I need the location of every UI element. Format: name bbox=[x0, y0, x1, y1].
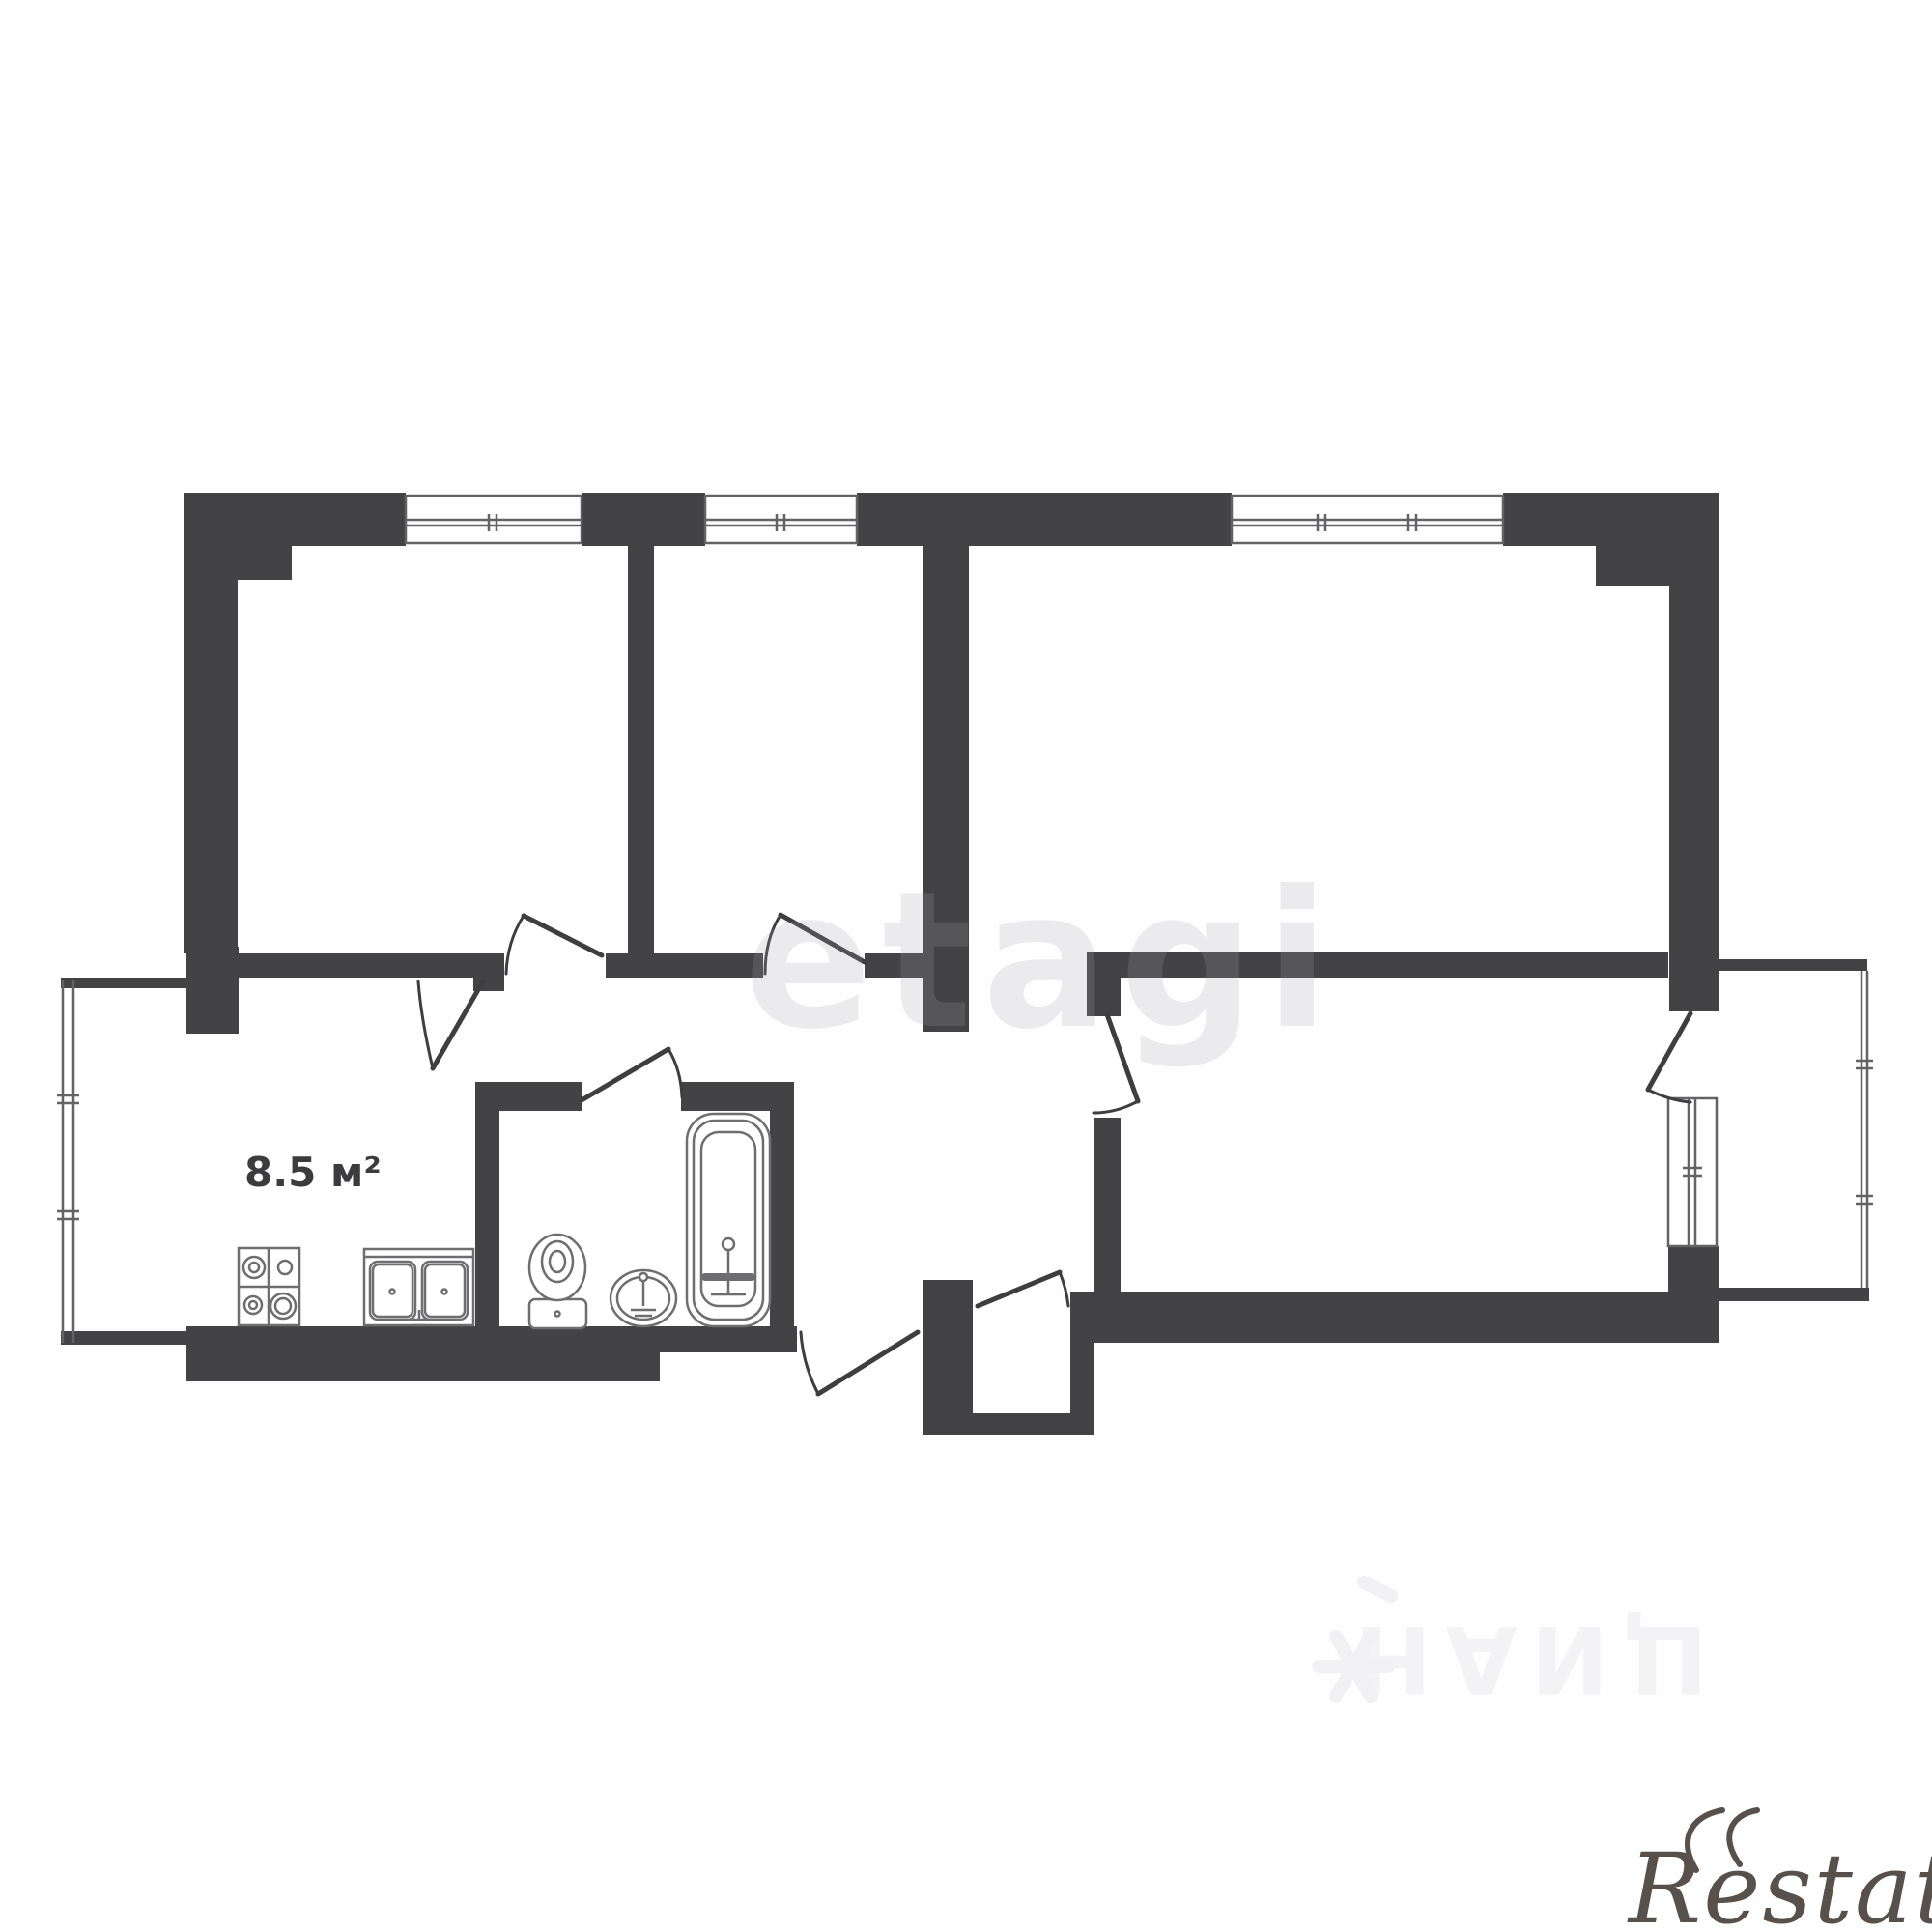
wall-vestibule-left bbox=[923, 1280, 973, 1435]
wall-bath-left bbox=[475, 1082, 499, 1326]
door-entry-niche bbox=[978, 1272, 1068, 1306]
window-rightroom bbox=[1668, 1098, 1717, 1246]
wall-kitchen-block bbox=[186, 947, 239, 1034]
floor-plan-image: etagi bbox=[0, 0, 1932, 1932]
wall-rightroom-bottom bbox=[1094, 1292, 1719, 1343]
wall-balcony-top bbox=[1719, 959, 1867, 971]
wall-bath-right bbox=[770, 1082, 794, 1326]
wall-rightroom-left bbox=[1094, 1118, 1121, 1292]
kitchen-area-label: 8.5 м² bbox=[244, 1149, 382, 1196]
wall-bottom-b bbox=[186, 1352, 660, 1381]
kitchen-sink bbox=[364, 1249, 473, 1325]
window-room3 bbox=[1232, 496, 1503, 543]
wash-basin bbox=[611, 1270, 676, 1326]
wall-notch-topright bbox=[1596, 546, 1669, 586]
stove bbox=[239, 1248, 299, 1325]
wall-top-3 bbox=[857, 493, 1232, 546]
wall-divider-b bbox=[606, 953, 763, 978]
wall-balcony-pillar bbox=[1668, 1246, 1719, 1294]
door-balcony bbox=[1648, 1013, 1690, 1102]
door-bathroom bbox=[582, 1049, 682, 1100]
fixtures bbox=[239, 1114, 770, 1328]
wall-top-1 bbox=[184, 493, 406, 546]
logo-restate: Restate bbox=[1627, 1810, 1932, 1932]
door-entry-hall bbox=[801, 1332, 918, 1394]
wall-vestibule-right bbox=[1070, 1292, 1094, 1435]
door-room-left bbox=[506, 916, 602, 974]
watermark-cian-text: ЦИАН bbox=[1341, 1605, 1708, 1713]
wall-glazing-topframe bbox=[61, 978, 186, 988]
watermark-cian: ЦИАН bbox=[1319, 1582, 1708, 1713]
wall-bottom-a bbox=[186, 1326, 797, 1352]
wall-vestibule-bottom bbox=[973, 1413, 1072, 1435]
wall-right-outer bbox=[1669, 493, 1719, 1011]
wall-divider-a bbox=[238, 953, 504, 978]
wall-bath-top-a bbox=[499, 1082, 582, 1111]
floor-plan-canvas: etagi bbox=[0, 0, 1932, 1932]
wall-room1-room2 bbox=[628, 546, 654, 953]
bathtub bbox=[687, 1114, 770, 1326]
watermark-etagi-ghost: etagi bbox=[744, 851, 1339, 1071]
window-balcony-glazing bbox=[1856, 971, 1873, 1288]
window-kitchen-glazing bbox=[57, 980, 79, 1343]
wall-left bbox=[184, 546, 238, 953]
window-room2 bbox=[705, 496, 857, 543]
window-room1 bbox=[406, 496, 582, 543]
wall-top-2 bbox=[582, 493, 705, 546]
wall-balcony-bottom bbox=[1719, 1288, 1869, 1301]
wall-glazing-bottomframe bbox=[61, 1331, 186, 1345]
door-kitchen bbox=[418, 981, 483, 1068]
logo-restate-text: Restate bbox=[1627, 1833, 1932, 1932]
toilet bbox=[529, 1235, 586, 1328]
